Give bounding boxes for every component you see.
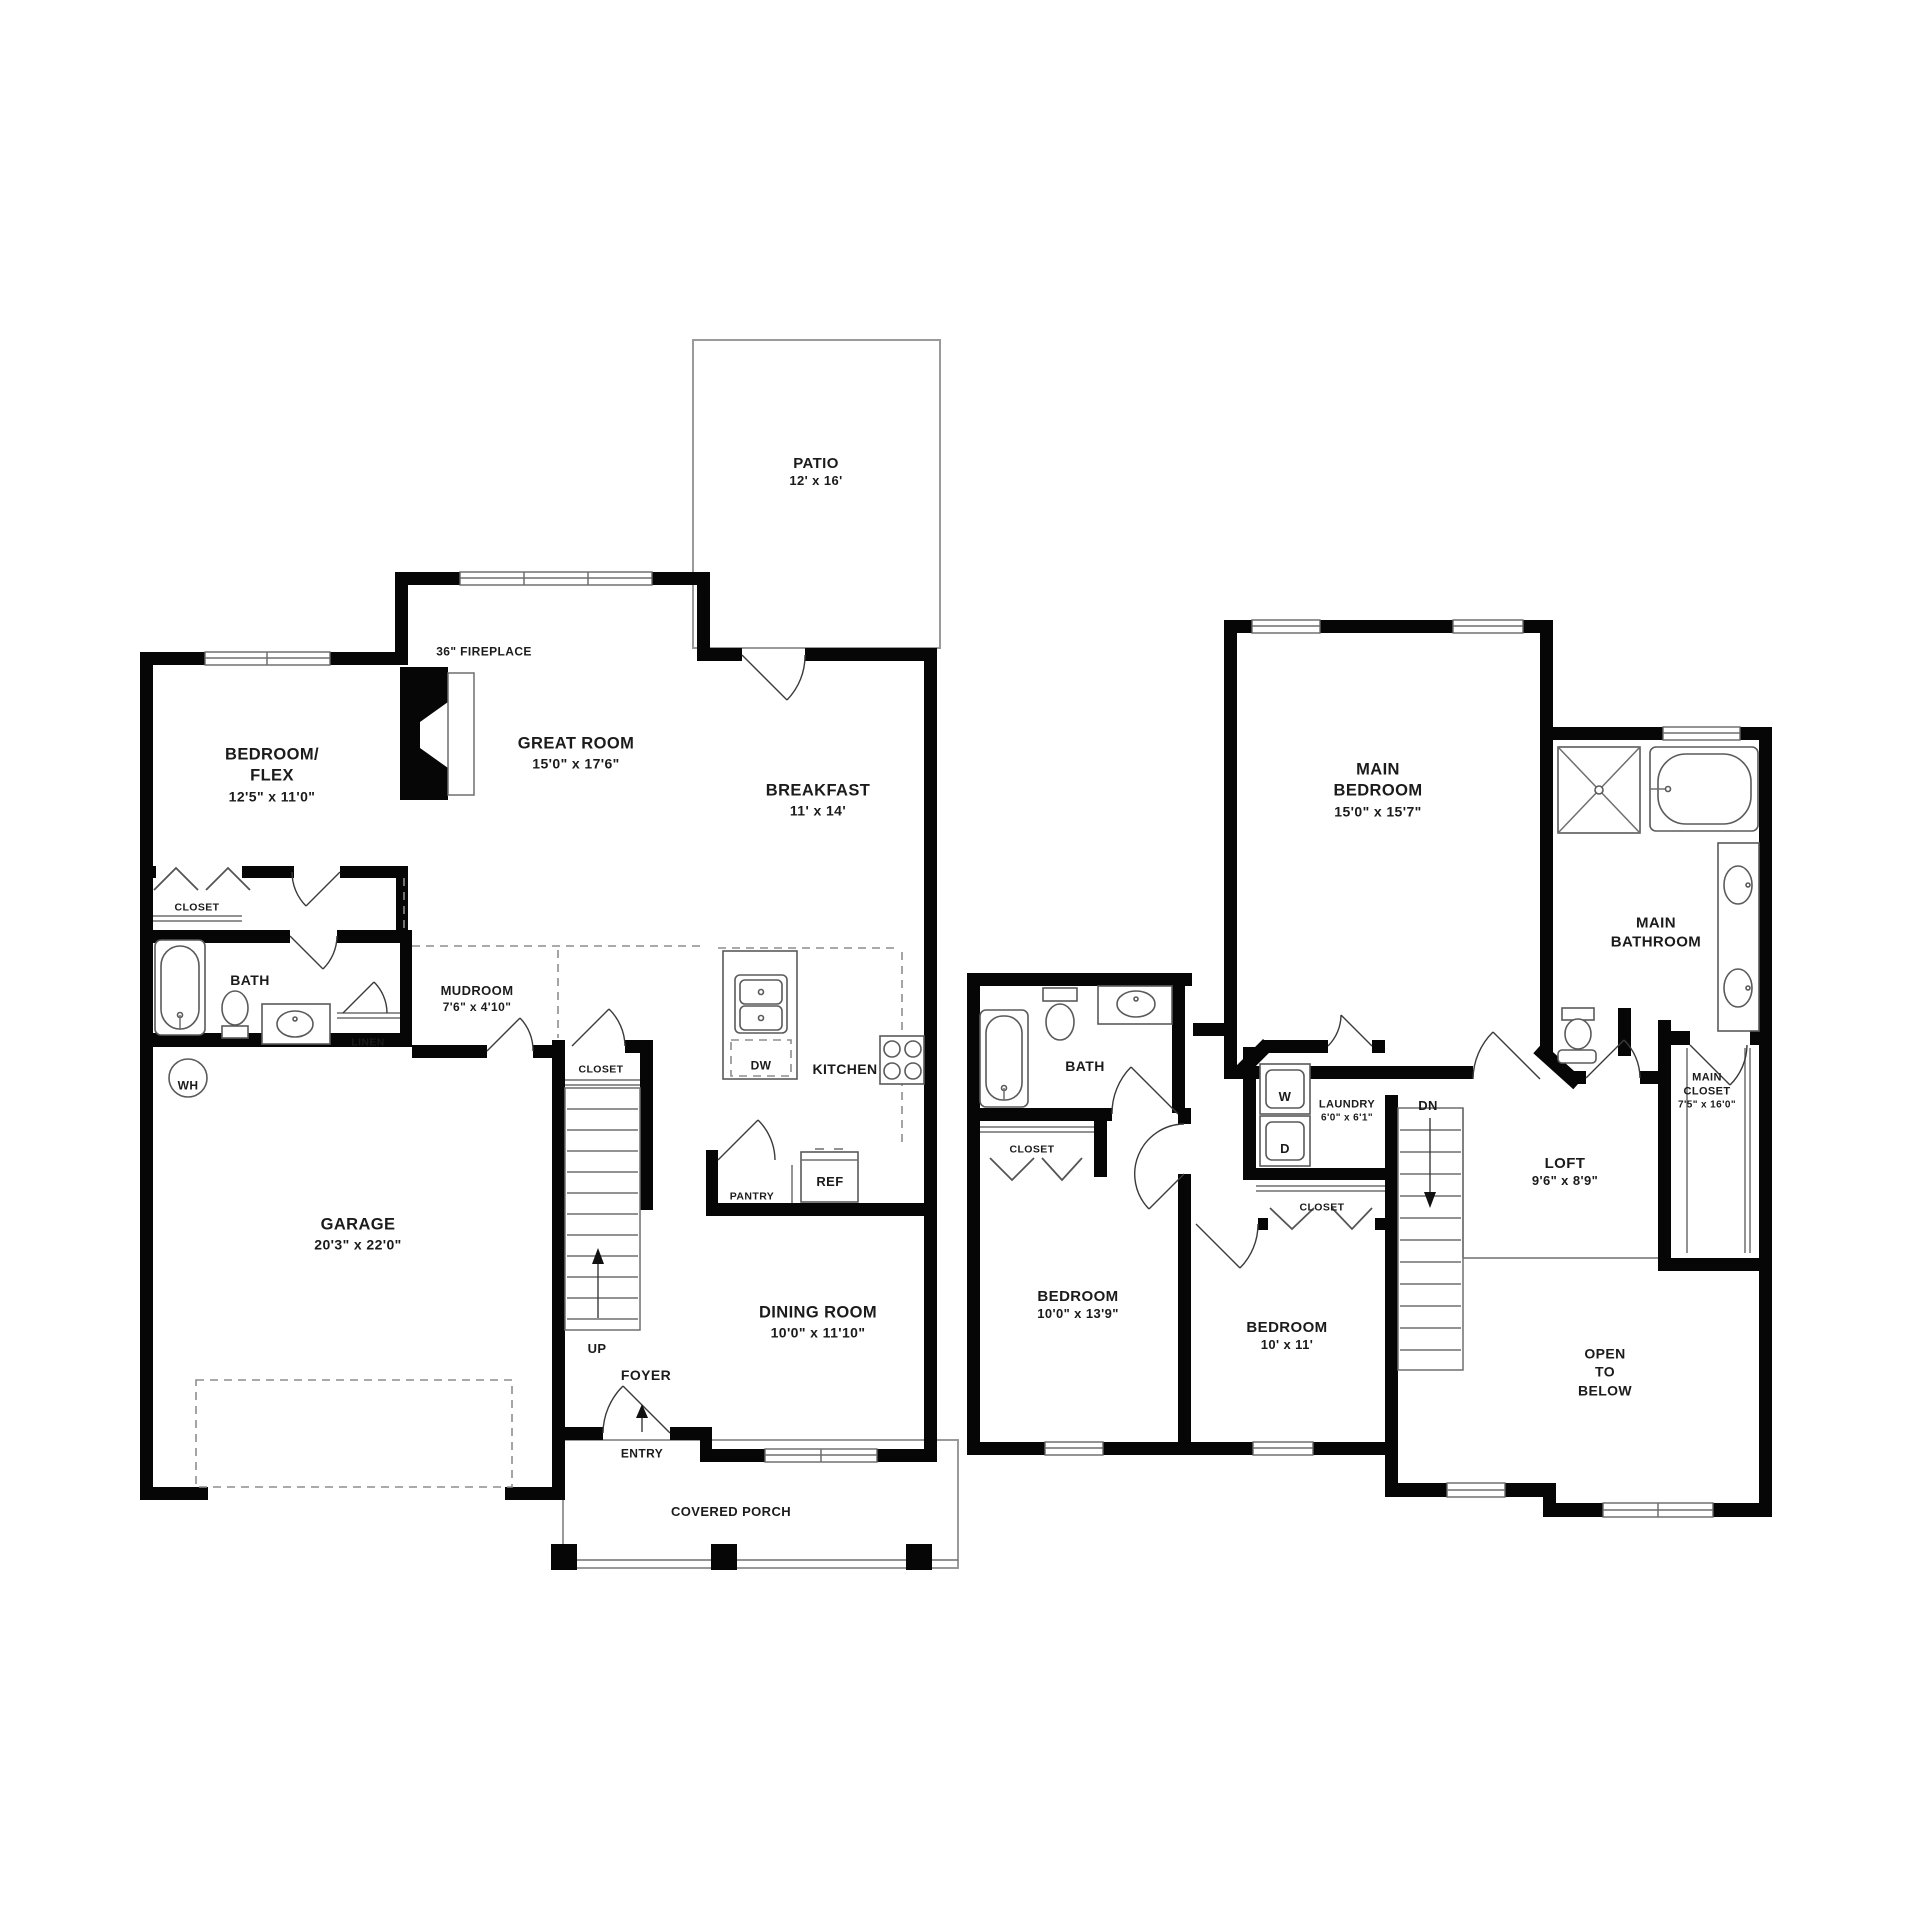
upper-bath-closet-label: CLOSET	[1010, 1129, 1055, 1156]
fireplace-icon	[400, 667, 474, 800]
dining-room-label: DINING ROOM10'0" x 11'10"	[759, 1281, 877, 1362]
refrigerator-label: REF	[816, 1157, 843, 1191]
patio-label: PATIO12' x 16'	[789, 433, 842, 511]
toilet-tank-icon	[1043, 988, 1077, 1001]
stair-closet-label: CLOSET	[579, 1049, 624, 1076]
garage-door-dashed	[196, 1380, 512, 1487]
laundry-closet-label: CLOSET	[1300, 1187, 1345, 1214]
garage-label: GARAGE20'3" x 22'0"	[314, 1193, 401, 1274]
loft-label: LOFT9'6" x 8'9"	[1532, 1133, 1598, 1211]
sink-icon	[277, 1011, 313, 1037]
open-to-below-label: OPEN TO BELOW	[1578, 1327, 1632, 1418]
stairs-down-label: DN	[1418, 1081, 1438, 1115]
main-bedroom-label: MAIN BEDROOM15'0" x 15'7"	[1334, 739, 1423, 842]
breakfast-label: BREAKFAST11' x 14'	[766, 759, 870, 840]
bath-label: BATH	[230, 953, 269, 989]
pantry-label: PANTRY	[730, 1176, 774, 1203]
mudroom-label: MUDROOM7'6" x 4'10"	[441, 962, 514, 1036]
kitchen-label: KITCHEN	[812, 1042, 877, 1078]
water-heater-label: WH	[178, 1062, 199, 1093]
foyer-label: FOYER	[621, 1348, 671, 1384]
closet-label: CLOSET	[175, 887, 220, 914]
fireplace-label: 36" FIREPLACE	[436, 628, 532, 659]
main-closet-label: MAIN CLOSET7'5" x 16'0"	[1678, 1049, 1736, 1132]
floor-plan-page: PATIO12' x 16' 36" FIREPLACE GREAT ROOM1…	[0, 0, 1920, 1920]
bedroom-1-label: BEDROOM10'0" x 13'9"	[1037, 1266, 1119, 1344]
stairs-down	[1398, 1108, 1463, 1370]
entry-label: ENTRY	[621, 1430, 663, 1461]
main-bathroom-label: MAIN BATHROOM	[1611, 893, 1701, 974]
laundry-label: LAUNDRY6'0" x 6'1"	[1319, 1077, 1375, 1146]
stairs-up-label: UP	[588, 1324, 607, 1358]
wc-vanity-icon	[1558, 1050, 1596, 1063]
covered-porch-label: COVERED PORCH	[671, 1487, 791, 1521]
sink-icon	[1117, 991, 1155, 1017]
toilet-icon	[222, 991, 248, 1025]
toilet-icon	[1046, 1004, 1074, 1040]
toilet-icon	[1565, 1019, 1591, 1049]
washer-label: W	[1279, 1072, 1292, 1106]
stairs-up	[565, 1080, 640, 1330]
bedroom-flex-label: BEDROOM/ FLEX12'5" x 11'0"	[225, 724, 319, 827]
linen-label: LINEN	[351, 1022, 385, 1049]
upper-bath-label: BATH	[1065, 1039, 1104, 1075]
dishwasher-label: DW	[751, 1042, 772, 1073]
great-room-label: GREAT ROOM15'0" x 17'6"	[518, 712, 634, 793]
dryer-label: D	[1280, 1124, 1290, 1158]
bedroom-2-label: BEDROOM10' x 11'	[1246, 1297, 1327, 1375]
entry-arrow-icon	[636, 1404, 648, 1432]
